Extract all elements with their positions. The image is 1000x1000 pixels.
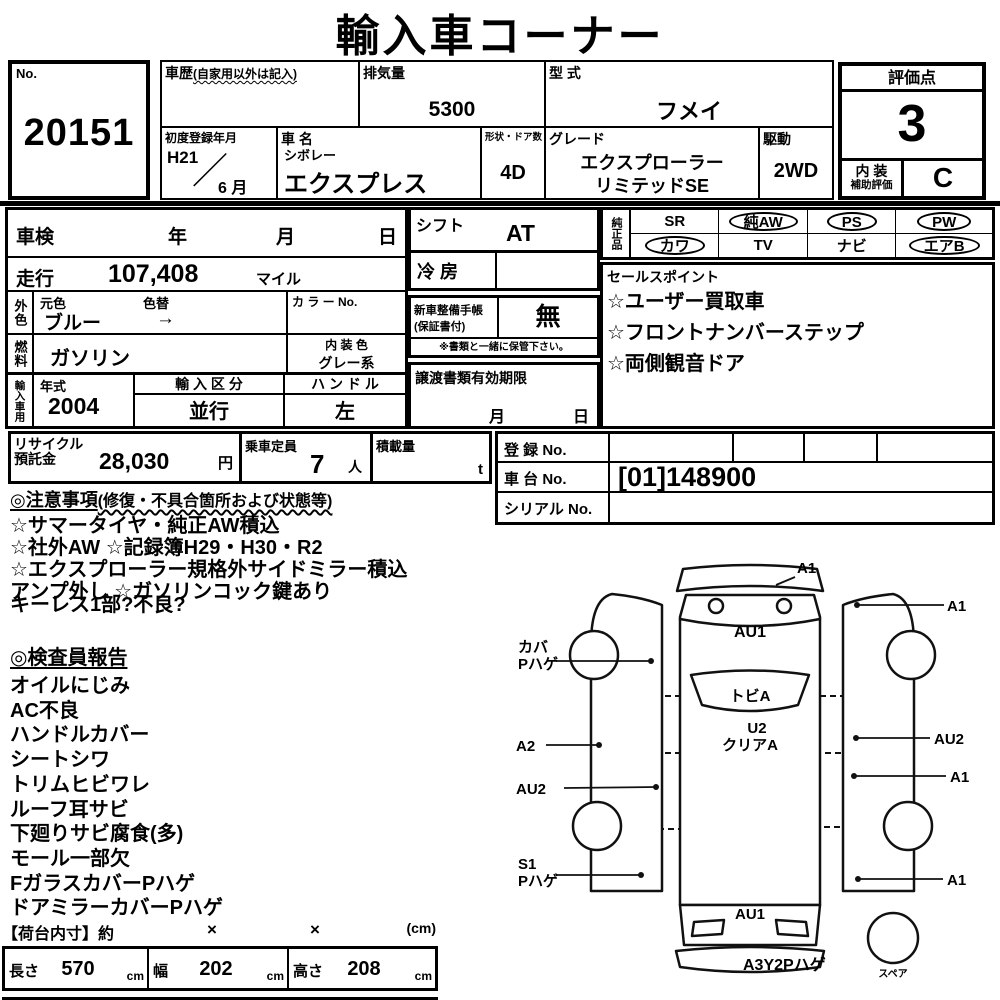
notes-block: ◎注意事項(修復・不具合箇所および状態等) ☆サマータイヤ・純正AW積込 ☆社外…	[10, 486, 500, 603]
model-year-value: 2004	[48, 393, 99, 420]
report-line: モール一部欠	[10, 847, 460, 872]
seating-capacity-box: 乗車定員 7 人	[239, 431, 373, 484]
transfer-docs-month: 月	[489, 403, 505, 427]
cargo-length-cell: 長さ 570 cm	[5, 949, 149, 988]
registration-no-row: 登 録 No.	[498, 434, 992, 463]
note-line: ☆エクスプローラー規格外サイドミラー積込	[10, 559, 500, 581]
mark-rear-gate: AU1	[735, 906, 765, 923]
serial-no-label: シリアル No.	[498, 493, 610, 522]
fuel-row: 燃料 ガソリン 内 装 色 グレー系	[8, 335, 405, 375]
note-line: ☆サマータイヤ・純正AW積込	[10, 515, 500, 537]
inspection-label: 車検	[16, 222, 54, 249]
rating-box: 評価点 3 内 装 補助評価 C	[838, 62, 986, 200]
spare-wheel-label: スペア	[878, 968, 907, 980]
report-line: ルーフ耳サビ	[10, 798, 460, 823]
reg-divider	[803, 434, 805, 461]
grade-line2: リミテッドSE	[546, 172, 758, 198]
registration-no-value	[610, 434, 992, 461]
transfer-docs-label: 譲渡書類有効期限	[415, 368, 527, 388]
import-vlabel: 輸入車用	[8, 375, 34, 426]
transfer-docs-box: 譲渡書類有効期限 月 日	[408, 362, 600, 429]
interior-color-label: 内 装 色	[288, 336, 405, 353]
cargo-dimensions-header: 【荷台内寸】約 × × (cm)	[2, 920, 438, 944]
grade-label: グレード	[549, 129, 605, 149]
load-unit: t	[478, 461, 483, 478]
drive-label: 駆動	[763, 129, 791, 149]
model-code-value: フメイ	[546, 94, 832, 126]
service-book-note: ※書類と一緒に保管下さい。	[411, 339, 597, 357]
page-title: 輸入車コーナー	[0, 0, 1000, 64]
oem-equipment-box: 純正品 SR 純AW PS PW カワ TV ナビ エアB	[600, 207, 995, 260]
report-line: シートシワ	[10, 748, 460, 773]
recycle-label: リサイクル預託金	[14, 437, 83, 467]
section-divider	[0, 201, 1000, 206]
equip-ps: PS	[808, 210, 896, 234]
rating-label: 評価点	[842, 66, 982, 92]
mark-hood: AU1	[734, 624, 766, 641]
drive-cell: 駆動 2WD	[758, 126, 834, 200]
spare-wheel	[868, 913, 918, 963]
load-capacity-box: 積載量 t	[370, 431, 492, 484]
handle-label: ハ ン ド ル	[285, 375, 405, 395]
notes-header-note: (修復・不具合箇所および状態等)	[98, 493, 333, 510]
cargo-header-label: 【荷台内寸】約	[2, 920, 114, 944]
no-label: No.	[16, 66, 37, 81]
model-code-cell: 型 式 フメイ	[544, 60, 834, 128]
body-doors-cell: 形状・ドア数 4D	[480, 126, 546, 200]
car-history-cell: 車歴(自家用以外は記入)	[160, 60, 360, 128]
reg-divider	[732, 434, 734, 461]
notes-header: ◎注意事項	[10, 490, 98, 510]
color-no-cell: カ ラ ー No.	[286, 292, 405, 333]
mark-front-bumper: A1	[797, 560, 816, 577]
oem-equipment-vlabel: 純正品	[603, 210, 631, 257]
chassis-no-label: 車 台 No.	[498, 463, 610, 490]
right-rear-wheel	[884, 802, 932, 850]
equip-pw: PW	[896, 210, 992, 234]
service-book-box: 新車整備手帳 (保証書付) 無 ※書類と一緒に保管下さい。	[408, 295, 600, 358]
cargo-times1: ×	[207, 920, 217, 940]
body-doors-value: 4D	[482, 162, 544, 185]
report-line: トリムヒビワレ	[10, 773, 460, 798]
mileage-unit: マイル	[256, 268, 301, 289]
handle-value: 左	[285, 395, 405, 424]
history-note: (自家用以外は記入)	[193, 67, 297, 81]
mark-right-front-fender: A1	[947, 598, 966, 615]
mark-left-wheel-1: カバ	[518, 639, 548, 656]
vehicle-info-table: 車検 年 月 日 走行 107,408 マイル 外色 元色 色替 ブルー → カ…	[5, 207, 408, 429]
displacement-label: 排気量	[363, 63, 405, 83]
import-class-value: 並行	[135, 395, 283, 424]
color-change-arrow: →	[156, 308, 175, 330]
aircon-label: 冷 房	[411, 253, 497, 288]
report-line: ハンドルカバー	[10, 723, 460, 748]
mark-left-slide-door: AU2	[516, 781, 546, 798]
inspection-year: 年	[168, 222, 187, 249]
service-book-label: 新車整備手帳 (保証書付)	[411, 298, 499, 337]
report-line: オイルにじみ	[10, 674, 460, 699]
capacity-label: 乗車定員	[245, 436, 297, 455]
recycle-unit: 円	[218, 452, 233, 473]
grade-cell: グレード エクスプローラー リミテッドSE	[544, 126, 760, 200]
sales-points-label: セールスポイント	[607, 267, 988, 287]
equip-tv: TV	[719, 234, 807, 258]
equip-airb: エアB	[896, 234, 992, 258]
recycle-deposit-box: リサイクル預託金 28,030 円	[8, 431, 242, 484]
interior-rating-grade: C	[904, 161, 982, 197]
interior-color-cell: 内 装 色 グレー系	[286, 335, 405, 372]
mileage-value: 107,408	[108, 260, 198, 289]
mark-right-slide-door: AU2	[934, 731, 964, 748]
first-reg-month: 6 月	[218, 174, 247, 198]
mark-left-rear-2: Pハゲ	[518, 872, 558, 890]
inspector-report-header: ◎検査員報告	[10, 641, 460, 670]
report-line: AC不良	[10, 699, 460, 724]
right-front-wheel	[887, 631, 935, 679]
mark-roof-1: U2	[747, 720, 766, 737]
registration-table: 登 録 No. 車 台 No. [01]148900 シリアル No.	[495, 431, 995, 525]
capacity-unit: 人	[348, 457, 362, 477]
equip-jun-aw: 純AW	[719, 210, 807, 234]
cargo-unit-note: (cm)	[406, 920, 436, 936]
mark-left-door: A2	[516, 738, 535, 755]
chassis-no-row: 車 台 No. [01]148900	[498, 463, 992, 492]
import-class-label: 輸 入 区 分	[135, 375, 283, 395]
service-book-value: 無	[499, 298, 597, 337]
first-registration-cell: 初度登録年月 H21 ／ 6 月	[160, 126, 278, 200]
reg-divider	[876, 434, 878, 461]
report-line: ドアミラーカバーPハゲ	[10, 896, 460, 921]
keyless-note: キーレス1部?不良?	[10, 594, 186, 616]
sales-point: ☆フロントナンバーステップ	[607, 318, 988, 349]
left-front-wheel	[570, 631, 618, 679]
car-maker: シボレー	[284, 145, 336, 164]
serial-no-row: シリアル No.	[498, 493, 992, 522]
capacity-value: 7	[310, 449, 324, 480]
exterior-color-row: 外色 元色 色替 ブルー → カ ラ ー No.	[8, 292, 405, 335]
sales-point: ☆ユーザー買取車	[607, 287, 988, 318]
history-label: 車歴	[165, 65, 193, 81]
oem-equipment-grid: SR 純AW PS PW カワ TV ナビ エアB	[631, 210, 992, 257]
body-doors-label: 形状・ドア数	[485, 129, 542, 143]
displacement-cell: 排気量 5300	[358, 60, 546, 128]
auction-no-box: No. 20151	[8, 60, 150, 200]
import-row: 輸入車用 年式 2004 輸 入 区 分 並行 ハ ン ド ル 左	[8, 375, 405, 426]
cargo-dimensions-table: 長さ 570 cm 幅 202 cm 高さ 208 cm	[2, 946, 438, 991]
inspection-month: 月	[276, 222, 295, 249]
load-label: 積載量	[376, 436, 415, 455]
inspector-report-block: ◎検査員報告 オイルにじみ AC不良 ハンドルカバー シートシワ トリムヒビワレ…	[10, 641, 460, 921]
aircon-value	[497, 253, 597, 288]
interior-rating-label: 内 装 補助評価	[842, 161, 904, 197]
fuel-value: ガソリン	[50, 342, 130, 371]
orig-color-value: ブルー	[44, 308, 101, 335]
mark-left-wheel-2: Pハゲ	[518, 655, 558, 673]
registration-no-label: 登 録 No.	[498, 434, 610, 461]
cargo-height-cell: 高さ 208 cm	[289, 949, 435, 988]
import-class-cell: 輸 入 区 分 並行	[133, 375, 283, 426]
fuel-vlabel: 燃料	[8, 335, 34, 372]
mileage-label: 走行	[16, 264, 54, 291]
mileage-row: 走行 107,408 マイル	[8, 258, 405, 292]
mark-rear-bumper: A3Y2Pハゲ	[743, 955, 826, 974]
displacement-value: 5300	[360, 98, 544, 122]
aircon-box: 冷 房	[408, 250, 600, 291]
shift-label: シフト	[416, 212, 464, 236]
color-no-label: カ ラ ー No.	[292, 293, 357, 310]
mark-roof-2: クリアA	[722, 737, 778, 754]
equip-kawa: カワ	[631, 234, 719, 258]
cargo-width-cell: 幅 202 cm	[149, 949, 289, 988]
drive-value: 2WD	[760, 160, 832, 183]
car-name-cell: 車 名 シボレー エクスプレス	[276, 126, 482, 200]
auction-number: 20151	[12, 112, 146, 155]
interior-color-value: グレー系	[288, 353, 405, 373]
serial-no-value	[610, 493, 992, 522]
shift-box: シフト AT	[408, 207, 600, 253]
exterior-color-vlabel: 外色	[8, 292, 34, 333]
note-line: ☆社外AW ☆記録簿H29・H30・R2	[10, 537, 500, 559]
handle-cell: ハ ン ド ル 左	[283, 375, 405, 426]
report-line: FガラスカバーPハゲ	[10, 872, 460, 897]
equip-navi: ナビ	[808, 234, 896, 258]
auction-sheet: 輸入車コーナー No. 20151 車歴(自家用以外は記入) 排気量 5300 …	[0, 0, 1000, 1000]
inspection-row: 車検 年 月 日	[8, 210, 405, 258]
sales-points-box: セールスポイント ☆ユーザー買取車 ☆フロントナンバーステップ ☆両側観音ドア	[600, 262, 995, 429]
mark-right-rear: A1	[947, 872, 966, 889]
model-code-label: 型 式	[549, 63, 581, 83]
shift-value: AT	[506, 220, 535, 247]
vehicle-damage-diagram: A1 A1 AU1 カバ Pハゲ トビA U2 クリアA A2 AU2 AU2 …	[510, 553, 995, 1000]
mark-right-panel: A1	[950, 769, 969, 786]
cargo-times2: ×	[310, 920, 320, 940]
left-rear-wheel	[573, 802, 621, 850]
recycle-value: 28,030	[99, 448, 169, 475]
mark-left-rear-1: S1	[518, 856, 536, 873]
inspection-day: 日	[378, 222, 397, 249]
sales-point: ☆両側観音ドア	[607, 349, 988, 380]
chassis-no-value: [01]148900	[610, 463, 992, 490]
report-line: 下廻りサビ腐食(多)	[10, 822, 460, 847]
mark-windshield: トビA	[730, 688, 771, 705]
transfer-docs-day: 日	[573, 403, 589, 427]
rating-score: 3	[842, 92, 982, 158]
car-name-value: エクスプレス	[284, 164, 427, 199]
equip-sr: SR	[631, 210, 719, 234]
